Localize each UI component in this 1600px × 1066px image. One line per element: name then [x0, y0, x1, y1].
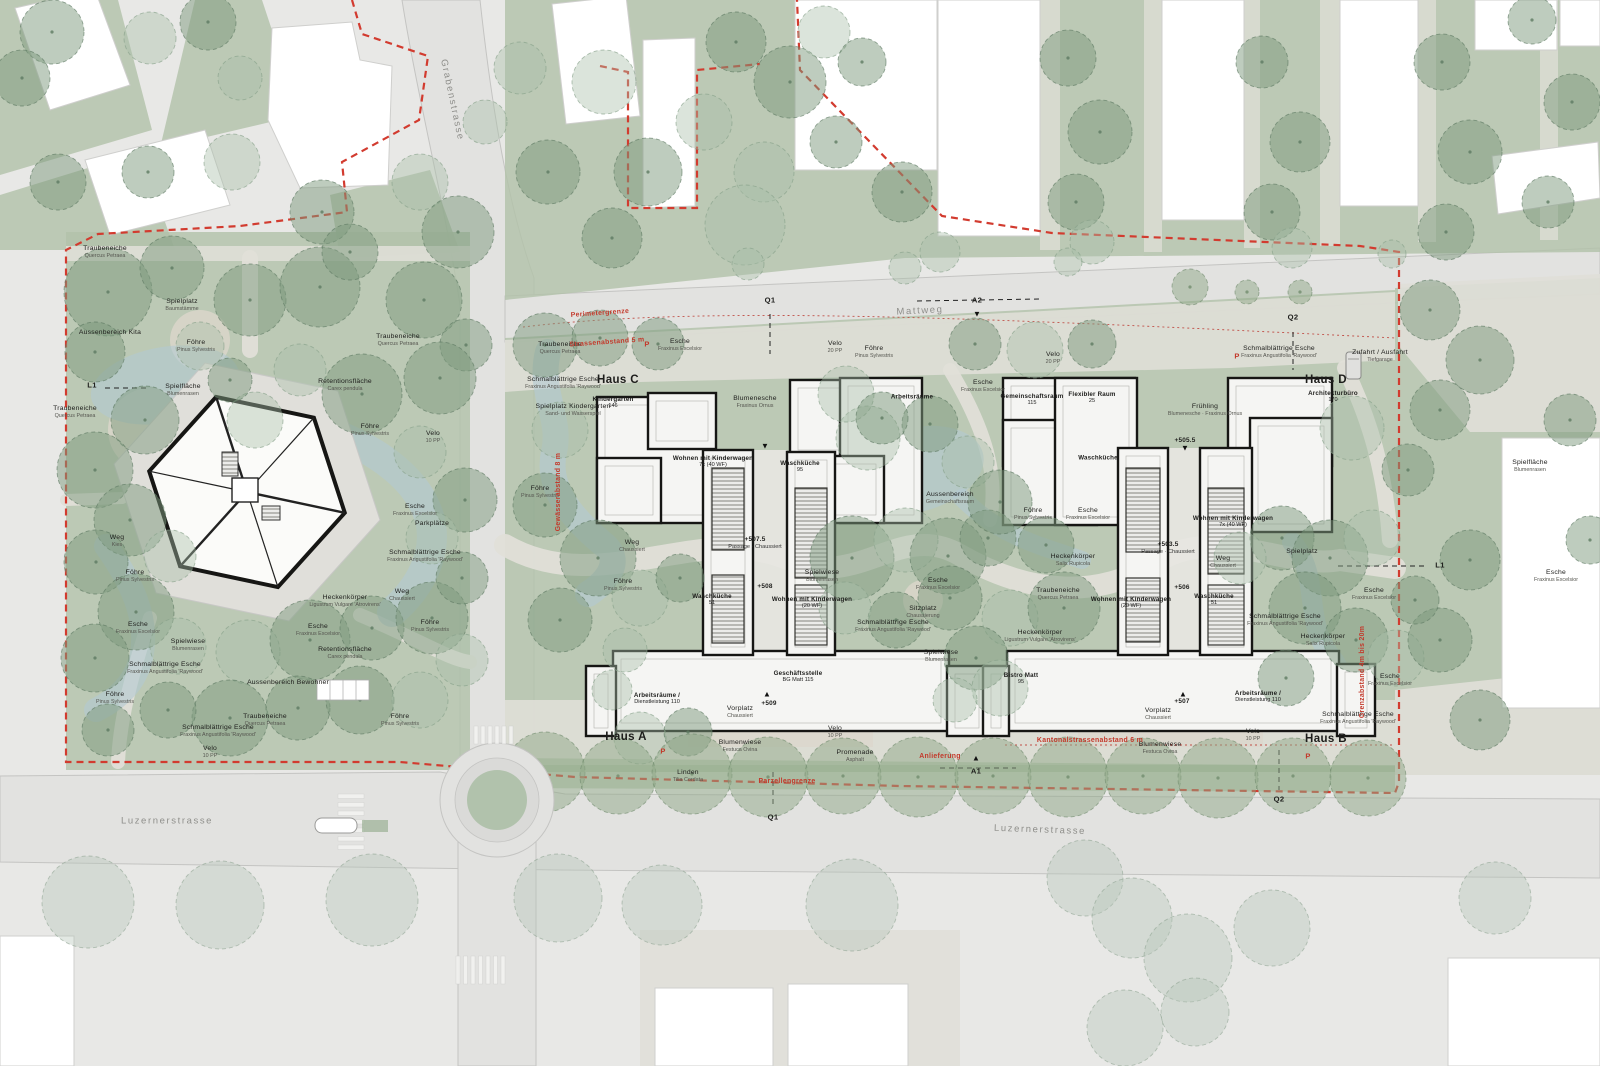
crosswalk-stripe: [338, 845, 364, 850]
tree-icon: [326, 854, 418, 946]
tree-trunk-dot: [974, 656, 977, 659]
tree-icon: [889, 252, 921, 284]
tree-icon: [176, 861, 264, 949]
path-strip: [1144, 0, 1162, 252]
tree-icon: [1161, 978, 1229, 1046]
tree-trunk-dot: [1354, 638, 1357, 641]
tree-trunk-dot: [348, 250, 351, 253]
tree-trunk-dot: [1074, 200, 1077, 203]
tree-trunk-dot: [678, 576, 681, 579]
building-footprint: [648, 393, 716, 449]
tree-icon: [920, 232, 960, 272]
stair-core: [1208, 585, 1244, 645]
site-plan: TraubeneicheQuercus PetraeaSpielplatzBau…: [0, 0, 1600, 1066]
tree-trunk-dot: [1428, 308, 1431, 311]
tree-trunk-dot: [860, 60, 863, 63]
tree-trunk-dot: [463, 498, 466, 501]
tree-icon: [1320, 396, 1384, 460]
building-footprint: [597, 458, 661, 523]
tree-icon: [1272, 228, 1312, 268]
tree-trunk-dot: [1098, 130, 1101, 133]
tree-trunk-dot: [1298, 290, 1301, 293]
tree-trunk-dot: [94, 560, 97, 563]
crosswalk-stripe: [471, 956, 475, 984]
tree-trunk-dot: [146, 170, 149, 173]
tree-trunk-dot: [143, 418, 146, 421]
crosswalk-stripe: [479, 956, 483, 984]
crosswalk-stripe: [464, 956, 468, 984]
tree-trunk-dot: [734, 40, 737, 43]
tree-trunk-dot: [998, 500, 1001, 503]
bus-stop-island: [362, 820, 388, 832]
tree-icon: [150, 618, 206, 674]
tree-trunk-dot: [20, 76, 23, 79]
tree-trunk-dot: [1328, 556, 1331, 559]
tree-icon: [1378, 240, 1406, 268]
car-icon: [1346, 352, 1361, 379]
tree-icon: [532, 402, 588, 458]
tree-trunk-dot: [1284, 676, 1287, 679]
tree-trunk-dot: [686, 730, 689, 733]
tree-icon: [972, 660, 1028, 716]
tree-icon: [676, 94, 732, 150]
crosswalk-stripe: [509, 726, 513, 744]
tree-icon: [436, 634, 488, 686]
tree-trunk-dot: [834, 140, 837, 143]
tree-trunk-dot: [170, 266, 173, 269]
tree-trunk-dot: [928, 422, 931, 425]
tree-trunk-dot: [646, 170, 649, 173]
crosswalk-stripe: [494, 956, 498, 984]
neighbor-building: [1502, 438, 1600, 708]
tree-trunk-dot: [166, 708, 169, 711]
tree-trunk-dot: [900, 190, 903, 193]
stair-core: [1126, 468, 1160, 552]
tree-icon: [514, 854, 602, 942]
tree-icon: [124, 12, 176, 64]
tree-icon: [1459, 862, 1531, 934]
tree-trunk-dot: [464, 343, 467, 346]
crosswalk-stripe: [338, 794, 364, 799]
tree-trunk-dot: [1062, 606, 1065, 609]
tree-icon: [463, 100, 507, 144]
crosswalk-stripe: [502, 726, 506, 744]
tree-icon: [494, 42, 546, 94]
tree-trunk-dot: [546, 170, 549, 173]
tree-trunk-dot: [1468, 558, 1471, 561]
tree-trunk-dot: [1440, 60, 1443, 63]
tree-icon: [819, 582, 871, 634]
tree-trunk-dot: [948, 596, 951, 599]
tree-trunk-dot: [1291, 774, 1294, 777]
tree-trunk-dot: [308, 638, 311, 641]
tree-trunk-dot: [1438, 408, 1441, 411]
crosswalk-stripe: [495, 726, 499, 744]
roundabout-island: [467, 770, 527, 830]
tree-icon: [392, 672, 448, 728]
tree-trunk-dot: [1090, 342, 1093, 345]
building-footprint: [613, 651, 949, 731]
tree-trunk-dot: [880, 416, 883, 419]
neighbor-building: [1340, 0, 1418, 206]
tree-trunk-dot: [690, 772, 693, 775]
crosswalk-stripe: [338, 803, 364, 808]
tree-trunk-dot: [766, 775, 769, 778]
neighbor-building: [0, 936, 74, 1066]
tree-trunk-dot: [318, 285, 321, 288]
tree-trunk-dot: [656, 342, 659, 345]
tree-trunk-dot: [50, 30, 53, 33]
tree-trunk-dot: [1568, 418, 1571, 421]
tree-icon: [218, 56, 262, 100]
tree-trunk-dot: [1066, 775, 1069, 778]
crosswalk-stripe: [338, 811, 364, 816]
tree-trunk-dot: [1478, 718, 1481, 721]
tree-icon: [592, 670, 632, 710]
tree-trunk-dot: [610, 236, 613, 239]
tower-stair: [262, 506, 280, 520]
crosswalk-stripe: [481, 726, 485, 744]
neighbor-building: [1162, 0, 1244, 220]
tree-trunk-dot: [1044, 543, 1047, 546]
tree-icon: [274, 344, 326, 396]
tree-trunk-dot: [1298, 140, 1301, 143]
tree-icon: [1087, 990, 1163, 1066]
tree-trunk-dot: [1570, 100, 1573, 103]
tree-trunk-dot: [56, 180, 59, 183]
tree-trunk-dot: [228, 716, 231, 719]
tree-icon: [933, 678, 977, 722]
tree-trunk-dot: [596, 556, 599, 559]
tree-trunk-dot: [616, 774, 619, 777]
tree-icon: [1214, 532, 1266, 584]
tree-trunk-dot: [1530, 18, 1533, 21]
tree-trunk-dot: [558, 618, 561, 621]
tree-trunk-dot: [1141, 774, 1144, 777]
tree-trunk-dot: [1546, 200, 1549, 203]
crosswalk-stripe: [501, 956, 505, 984]
tree-trunk-dot: [1366, 776, 1369, 779]
tree-icon: [0, 50, 50, 106]
tower-core: [232, 478, 258, 502]
tree-trunk-dot: [93, 656, 96, 659]
tree-trunk-dot: [422, 298, 425, 301]
tree-trunk-dot: [1216, 776, 1219, 779]
tree-icon: [42, 856, 134, 948]
tree-trunk-dot: [1438, 638, 1441, 641]
tree-trunk-dot: [430, 616, 433, 619]
neighbor-building: [788, 984, 908, 1066]
crosswalk-stripe: [456, 956, 460, 984]
tree-trunk-dot: [320, 210, 323, 213]
tree-icon: [622, 865, 702, 945]
bus-stop-shelter: [315, 818, 357, 833]
tree-trunk-dot: [128, 518, 131, 521]
tree-trunk-dot: [93, 350, 96, 353]
tree-trunk-dot: [991, 774, 994, 777]
tree-icon: [216, 620, 280, 684]
crosswalk-stripe: [488, 726, 492, 744]
tree-trunk-dot: [850, 556, 853, 559]
tree-icon: [1054, 248, 1082, 276]
tree-trunk-dot: [916, 775, 919, 778]
tree-trunk-dot: [1588, 538, 1591, 541]
tree-icon: [603, 628, 647, 672]
tree-trunk-dot: [296, 706, 299, 709]
tree-icon: [1007, 322, 1063, 378]
tree-trunk-dot: [841, 774, 844, 777]
tree-trunk-dot: [106, 290, 109, 293]
tree-trunk-dot: [93, 468, 96, 471]
crosswalk-stripe: [338, 837, 364, 842]
tree-trunk-dot: [1188, 285, 1191, 288]
tree-trunk-dot: [1245, 290, 1248, 293]
tree-trunk-dot: [1066, 56, 1069, 59]
stair-core: [712, 575, 744, 643]
tree-trunk-dot: [543, 343, 546, 346]
tree-icon: [144, 530, 196, 582]
tree-trunk-dot: [1303, 606, 1306, 609]
stair-core: [712, 468, 744, 550]
crosswalk-stripe: [486, 956, 490, 984]
neighbor-building: [938, 0, 1040, 236]
tree-icon: [394, 426, 446, 478]
tree-icon: [204, 134, 260, 190]
stair-core: [1126, 578, 1160, 642]
tree-trunk-dot: [1406, 468, 1409, 471]
site-plan-canvas: [0, 0, 1600, 1066]
tree-trunk-dot: [1270, 210, 1273, 213]
tree-trunk-dot: [894, 618, 897, 621]
tree-trunk-dot: [370, 626, 373, 629]
tower-stair: [222, 452, 238, 476]
road: [458, 828, 536, 1066]
building-footprint: [1337, 664, 1375, 736]
tree-trunk-dot: [1444, 230, 1447, 233]
tree-trunk-dot: [598, 336, 601, 339]
tree-trunk-dot: [543, 503, 546, 506]
tree-trunk-dot: [986, 536, 989, 539]
tree-trunk-dot: [438, 376, 441, 379]
tree-icon: [180, 0, 236, 50]
neighbor-building: [655, 988, 773, 1066]
tree-trunk-dot: [248, 298, 251, 301]
tree-trunk-dot: [788, 80, 791, 83]
neighbor-building: [1448, 958, 1600, 1066]
tree-icon: [806, 859, 898, 951]
tree-icon: [572, 50, 636, 114]
tree-trunk-dot: [206, 20, 209, 23]
neighbor-building: [1560, 0, 1600, 46]
tree-trunk-dot: [134, 610, 137, 613]
tree-icon: [1344, 510, 1400, 566]
tree-trunk-dot: [1478, 358, 1481, 361]
tree-trunk-dot: [460, 576, 463, 579]
tree-trunk-dot: [973, 342, 976, 345]
tree-icon: [732, 248, 764, 280]
tree-trunk-dot: [1260, 60, 1263, 63]
tree-icon: [1234, 890, 1310, 966]
tree-trunk-dot: [1413, 598, 1416, 601]
tree-trunk-dot: [1468, 150, 1471, 153]
tree-trunk-dot: [456, 230, 459, 233]
tree-trunk-dot: [360, 392, 363, 395]
tree-trunk-dot: [946, 554, 949, 557]
tree-trunk-dot: [106, 728, 109, 731]
tree-trunk-dot: [1280, 536, 1283, 539]
crosswalk-stripe: [474, 726, 478, 744]
tree-trunk-dot: [228, 378, 231, 381]
